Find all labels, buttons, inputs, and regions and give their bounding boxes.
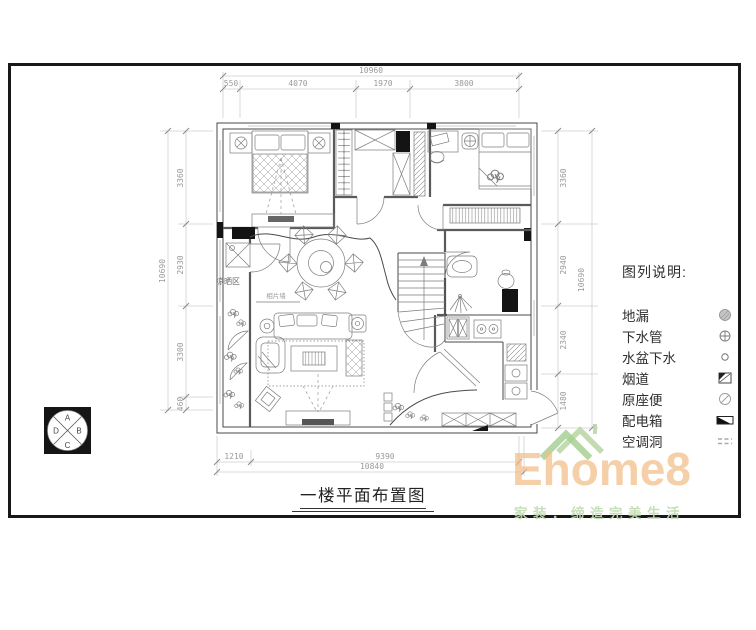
appliances bbox=[505, 365, 527, 399]
legend-item-flue: 烟道 bbox=[622, 367, 734, 388]
legend: 图列说明: 地漏 下水管 水盆下水 烟道 原座便 配电箱 空调洞 bbox=[622, 262, 734, 451]
dim-left-overall: 10690 bbox=[158, 259, 167, 283]
dim-top-seg0: 550 bbox=[224, 79, 239, 88]
legend-item-floor-drain: 地漏 bbox=[622, 304, 734, 325]
bathroom bbox=[447, 256, 518, 313]
stove bbox=[474, 320, 501, 338]
bedroom-tv bbox=[268, 216, 294, 222]
floor-drain-icon bbox=[716, 308, 734, 322]
master-bedroom bbox=[230, 131, 334, 239]
stamp-letter-c: C bbox=[65, 441, 71, 450]
nightstand-right bbox=[308, 133, 330, 153]
bedroom-2 bbox=[428, 129, 531, 223]
corridor-heater bbox=[450, 208, 520, 223]
balcony-garden bbox=[224, 309, 248, 409]
dim-bottom-overall: 10840 bbox=[360, 462, 384, 471]
dim-right-seg3: 1480 bbox=[559, 391, 568, 410]
legend-item-drain-pipe: 下水管 bbox=[622, 325, 734, 346]
dining-table bbox=[297, 239, 345, 287]
sink-drain-icon bbox=[716, 350, 734, 364]
dim-top-overall: 10960 bbox=[359, 66, 383, 75]
orientation-stamp: A B C D bbox=[44, 407, 91, 454]
floor-lamp bbox=[260, 319, 274, 333]
kitchen bbox=[445, 315, 531, 400]
single-bed bbox=[479, 129, 531, 189]
drain-pipe-icon bbox=[716, 329, 734, 343]
dim-top-seg2: 1970 bbox=[373, 79, 392, 88]
stairs bbox=[398, 253, 445, 347]
distribution-box-icon bbox=[716, 413, 734, 427]
original-toilet-icon bbox=[716, 392, 734, 406]
dim-top-seg1: 4070 bbox=[288, 79, 307, 88]
drawing-canvas: 相片墙 凉晒区 bbox=[0, 0, 756, 630]
living-tv bbox=[302, 419, 334, 425]
dim-right-seg0: 3360 bbox=[559, 168, 568, 187]
sofa bbox=[274, 313, 352, 339]
ceiling-lamp-symbol bbox=[462, 133, 478, 149]
drying-area-label: 凉晒区 bbox=[216, 276, 240, 286]
legend-title: 图列说明: bbox=[622, 262, 734, 282]
ac-hole-icon bbox=[716, 434, 734, 448]
legend-item-ac-hole: 空调洞 bbox=[622, 430, 734, 451]
entry bbox=[384, 390, 516, 431]
dim-left-seg0: 3360 bbox=[176, 168, 185, 187]
shower-spray bbox=[450, 295, 472, 314]
dim-right-overall: 10690 bbox=[577, 268, 586, 292]
legend-item-original-toilet: 原座便 bbox=[622, 388, 734, 409]
washing-machine bbox=[226, 243, 250, 267]
title-block: 一楼平面布置图 bbox=[288, 482, 438, 512]
stamp-letter-b: B bbox=[76, 427, 81, 436]
dining-chairs bbox=[279, 226, 363, 300]
dimensions-left: 10690 3360 2930 3300 460 bbox=[158, 128, 213, 413]
flue-black bbox=[502, 289, 518, 312]
plant-icon bbox=[488, 170, 504, 183]
stamp-letter-a: A bbox=[65, 414, 71, 423]
dim-top-seg3: 3800 bbox=[454, 79, 473, 88]
kitchen-sink bbox=[447, 317, 469, 339]
toilet bbox=[498, 270, 514, 289]
dim-left-seg3: 460 bbox=[176, 397, 185, 412]
dimensions-right: 3360 2940 2340 1480 10690 bbox=[541, 128, 598, 431]
flue-box bbox=[396, 131, 410, 152]
dining-area: 相片墙 bbox=[250, 226, 396, 302]
dim-right-seg1: 2940 bbox=[559, 255, 568, 274]
nightstand-left bbox=[230, 133, 252, 153]
armchair bbox=[256, 337, 285, 373]
floor-decor bbox=[255, 386, 280, 411]
dim-left-seg1: 2930 bbox=[176, 255, 185, 274]
hatched-panel bbox=[414, 132, 425, 196]
dim-left-seg2: 3300 bbox=[176, 342, 185, 361]
photo-wall-label: 相片墙 bbox=[266, 291, 286, 300]
distribution-box-plan bbox=[232, 227, 255, 239]
vanity-sink bbox=[447, 256, 477, 277]
vent-hatch bbox=[507, 344, 526, 361]
legend-item-distribution-box: 配电箱 bbox=[622, 409, 734, 430]
dim-right-seg2: 2340 bbox=[559, 330, 568, 349]
drying-area: 凉晒区 bbox=[216, 243, 250, 286]
flue-icon bbox=[716, 371, 734, 385]
coffee-table bbox=[291, 346, 337, 371]
desk bbox=[428, 131, 458, 163]
living-room bbox=[255, 313, 366, 425]
dim-bottom-left: 1210 bbox=[224, 452, 243, 461]
double-bed bbox=[252, 131, 308, 193]
ottoman bbox=[346, 340, 362, 376]
side-table-lamp bbox=[349, 315, 366, 332]
dimensions-bottom: 1210 9390 10840 bbox=[214, 436, 527, 476]
cloakroom bbox=[336, 130, 425, 196]
dimensions-top: 10960 550 4070 1970 3800 bbox=[220, 66, 522, 118]
legend-item-sink-drain: 水盆下水 bbox=[622, 346, 734, 367]
shoe-cabinet bbox=[442, 413, 516, 426]
dim-bottom-inner: 9390 bbox=[375, 452, 394, 461]
drawing-title: 一楼平面布置图 bbox=[292, 482, 434, 512]
stamp-letter-d: D bbox=[53, 427, 59, 436]
